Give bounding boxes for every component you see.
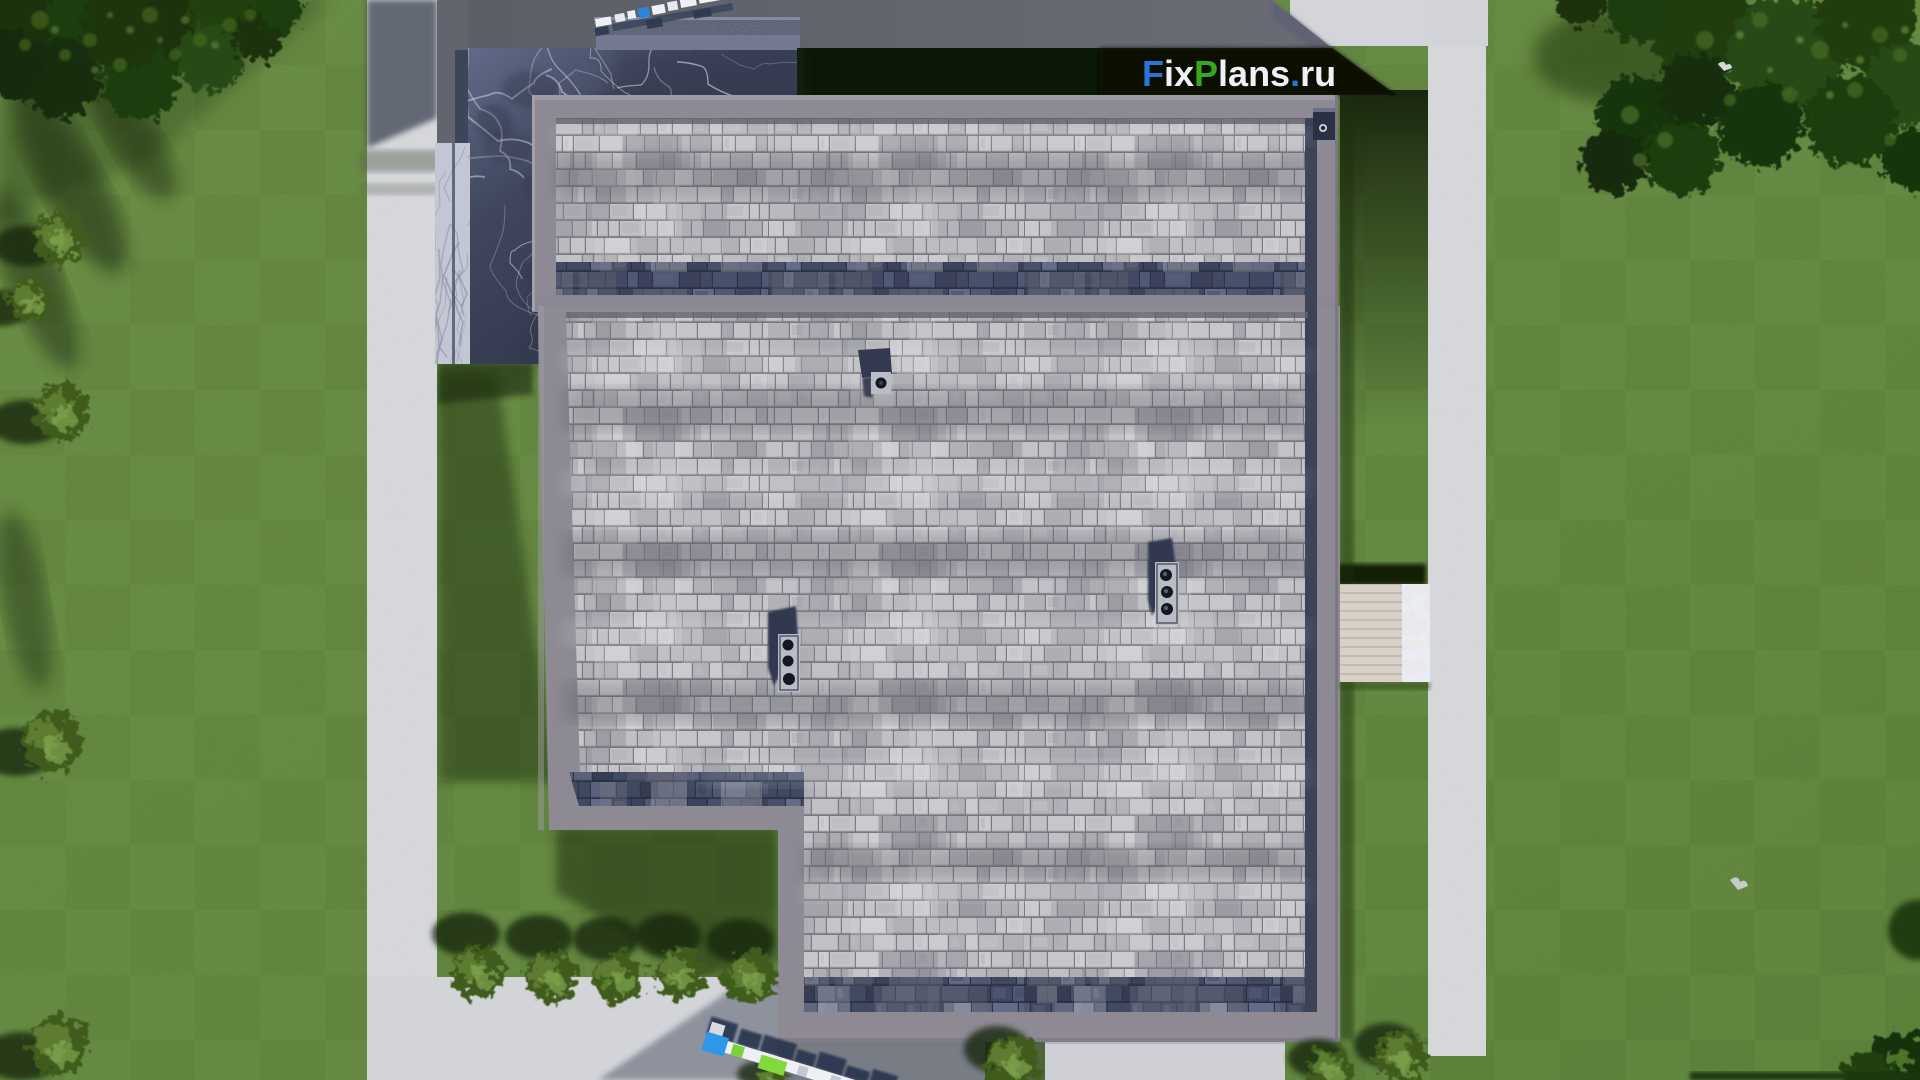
svg-text:FixPlans.ru: FixPlans.ru [1142, 53, 1336, 94]
